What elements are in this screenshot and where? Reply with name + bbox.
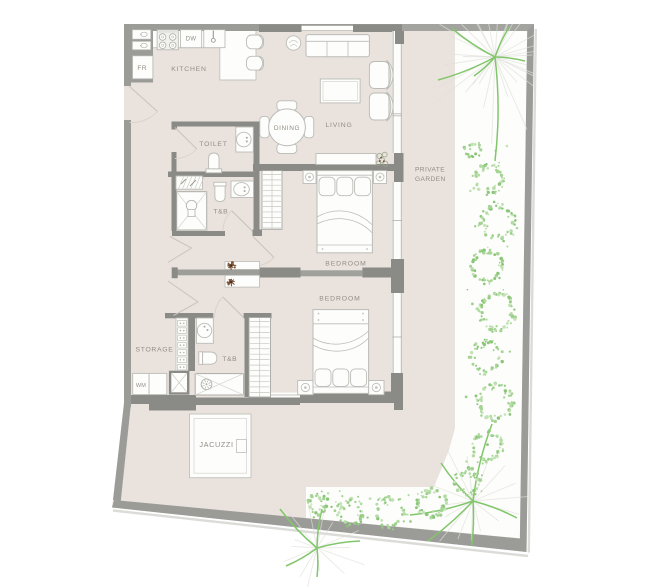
svg-text:JACUZZI: JACUZZI [199, 440, 233, 449]
svg-text:DINING: DINING [274, 125, 300, 132]
svg-text:BEDROOM: BEDROOM [319, 296, 360, 303]
svg-text:STORAGE: STORAGE [135, 347, 173, 354]
svg-text:PRIVATE: PRIVATE [415, 167, 445, 174]
svg-text:GARDEN: GARDEN [415, 176, 446, 183]
svg-text:KITCHEN: KITCHEN [171, 66, 206, 73]
svg-text:BEDROOM: BEDROOM [325, 260, 366, 267]
svg-text:T&B: T&B [213, 208, 228, 215]
svg-text:DW: DW [186, 37, 197, 43]
svg-text:TOILET: TOILET [199, 141, 227, 148]
svg-text:T&B: T&B [222, 356, 237, 363]
svg-text:FR: FR [137, 65, 147, 72]
svg-text:WM: WM [136, 383, 146, 389]
svg-text:LIVING: LIVING [325, 122, 352, 129]
